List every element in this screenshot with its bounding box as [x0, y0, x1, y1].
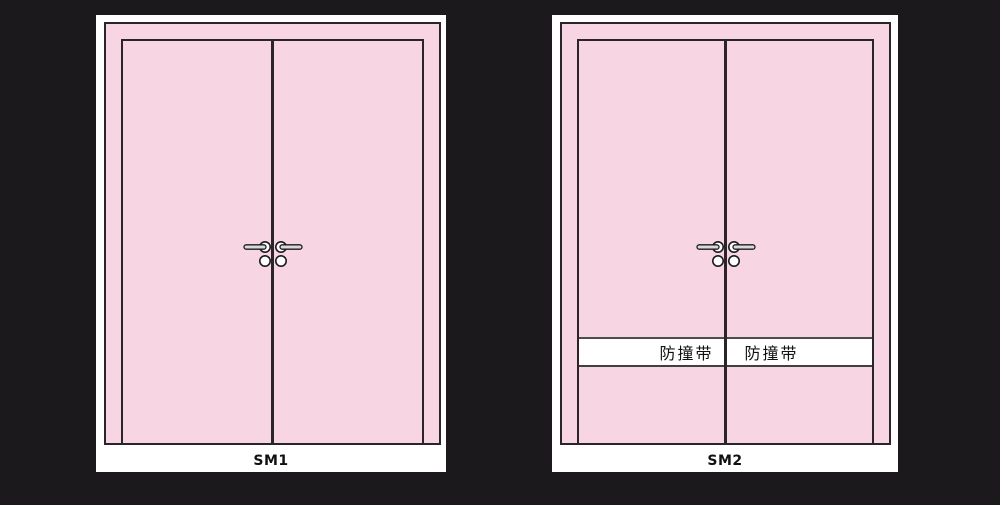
bump-strip-label: 防撞带 [659, 340, 713, 364]
lock-cylinder-icon [260, 256, 270, 266]
door-frame [104, 22, 441, 445]
door-handles-icon [243, 237, 303, 267]
door-label: SM1 [96, 454, 446, 468]
bump-strip-label: 防撞带 [745, 340, 799, 364]
lever-handle-icon [697, 245, 719, 249]
lock-cylinder-icon [276, 256, 286, 266]
bump-strip-right: 防撞带 [727, 337, 873, 367]
lever-handle-icon [244, 245, 266, 249]
door-label: SM2 [552, 454, 898, 468]
lock-cylinder-icon [713, 256, 723, 266]
door-card-sm1: SM1 [96, 15, 446, 472]
diagram-canvas: SM1 防撞带 防撞带 [0, 0, 1000, 505]
door-card-sm2: 防撞带 防撞带 SM2 [552, 15, 898, 472]
bump-strip-left: 防撞带 [579, 337, 724, 367]
lever-handle-icon [733, 245, 755, 249]
lock-cylinder-icon [729, 256, 739, 266]
door-handles-icon [696, 237, 756, 267]
door-frame: 防撞带 防撞带 [560, 22, 891, 445]
lever-handle-icon [280, 245, 302, 249]
